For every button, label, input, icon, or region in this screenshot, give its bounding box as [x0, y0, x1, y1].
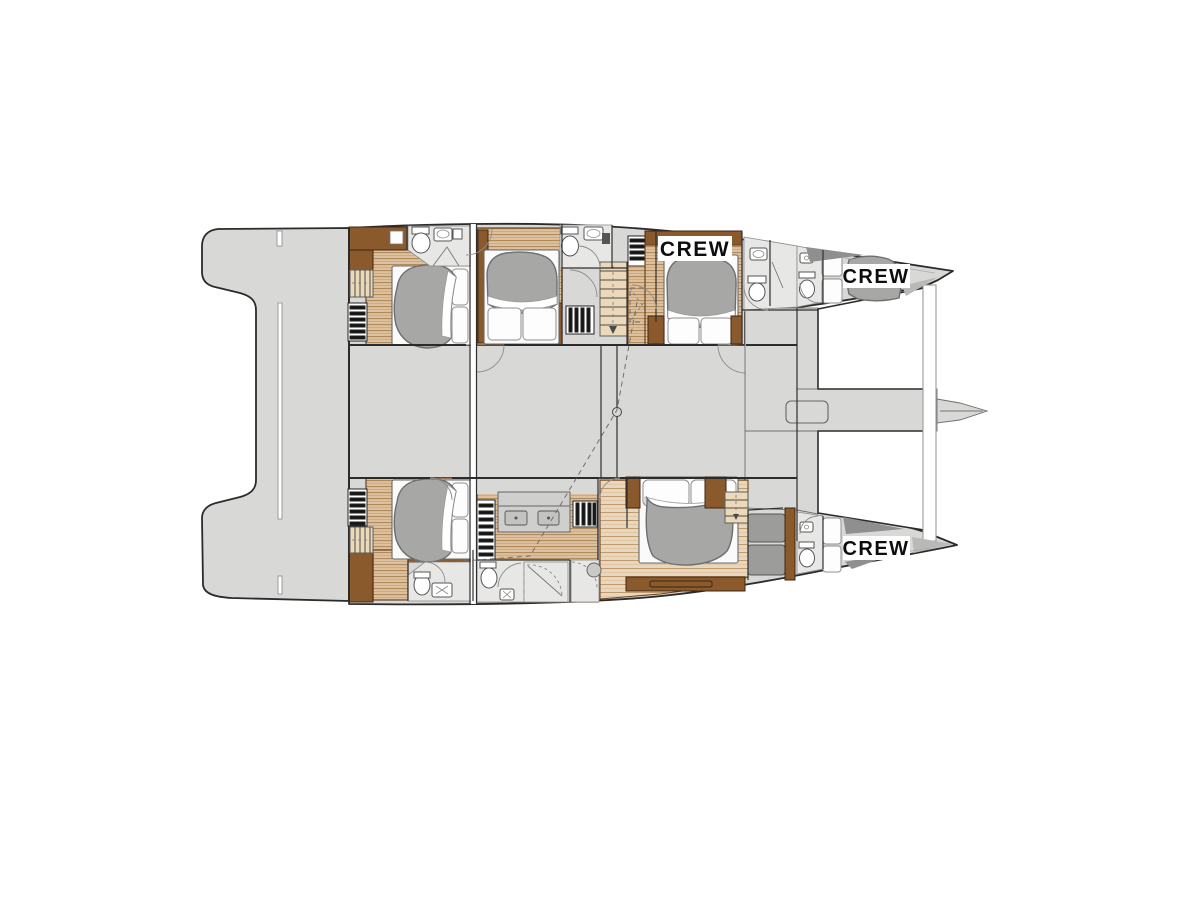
toilet-icon — [414, 572, 430, 595]
toilet-icon — [561, 227, 579, 256]
bed-stbd-aft — [392, 479, 472, 562]
shower-stall — [524, 562, 568, 602]
nightstand-right — [731, 316, 742, 344]
cabinet-door — [390, 231, 403, 244]
vent-grating-3 — [477, 500, 495, 561]
sink-icon — [500, 589, 514, 600]
crew-label-bow-port-text: CREW — [842, 266, 909, 288]
sink-icon — [750, 248, 767, 260]
bunk-cushion — [823, 518, 841, 544]
bowsprit — [937, 399, 987, 423]
crew-label-midship: CREW — [658, 236, 732, 261]
crew-label-bow-starboard: CREW — [842, 536, 910, 560]
deck-plan-svg: CREW CREW CREW — [0, 0, 1200, 900]
stairs-stbd-entry — [350, 527, 373, 553]
galley-backsplash — [498, 492, 570, 506]
stairs-port-entry — [350, 270, 373, 297]
aft-deck-outline — [202, 228, 349, 601]
vent-grating-6 — [348, 489, 367, 526]
center-wall-gap — [471, 224, 476, 604]
bathroom-stbd-fwd — [797, 512, 823, 574]
bathroom-fwd-port-1 — [744, 237, 797, 310]
cabin-port-mid — [477, 228, 562, 345]
trampoline-bottom — [818, 431, 924, 530]
toilet-icon — [799, 272, 815, 298]
aft-deck — [202, 228, 349, 601]
sink-icon — [800, 522, 813, 532]
vent-grating-2 — [566, 306, 594, 334]
crossbeam — [923, 285, 936, 541]
toilet-icon — [480, 562, 497, 588]
bathroom-galley — [477, 560, 599, 602]
catamaran-deck-plan: CREW CREW CREW — [0, 0, 1200, 900]
bed-port-aft — [392, 265, 472, 348]
steps-master — [725, 492, 748, 523]
bunk-cushion — [822, 279, 842, 303]
bathroom-stbd-aft — [408, 562, 473, 601]
stool — [587, 563, 601, 577]
crew-label-bow-starboard-text: CREW — [842, 538, 909, 560]
bunk-cushion — [823, 546, 841, 572]
salon-floor — [350, 340, 797, 480]
salon — [350, 340, 797, 480]
stairs-main — [600, 262, 627, 336]
deck-seam-3 — [278, 576, 282, 594]
toilet-icon — [748, 276, 766, 301]
footboard-drawer — [626, 577, 745, 591]
locker — [602, 233, 610, 244]
center-walkway — [797, 389, 937, 431]
deck-seam-2 — [278, 303, 282, 519]
bed-port-mid — [484, 250, 559, 344]
sink-icon — [434, 228, 452, 241]
vent-grating-4 — [573, 501, 597, 527]
vent-grating-5 — [348, 303, 367, 341]
trim-aft — [349, 550, 373, 602]
deck-seam-1 — [277, 231, 282, 246]
shelf — [453, 229, 462, 239]
fwd-corridor-lower — [745, 431, 818, 514]
galley-counter — [498, 506, 570, 532]
crew-label-bow-port: CREW — [842, 264, 910, 288]
sink-icon — [584, 227, 603, 240]
trim-port-aft — [349, 250, 373, 270]
sink-icon — [432, 583, 452, 597]
toilet-icon — [799, 542, 815, 567]
headboard-left — [626, 477, 640, 508]
headboard-right — [705, 477, 726, 508]
toilet-icon — [412, 227, 430, 253]
crew-label-midship-text: CREW — [660, 238, 730, 261]
bed-port-fwd — [664, 255, 738, 345]
